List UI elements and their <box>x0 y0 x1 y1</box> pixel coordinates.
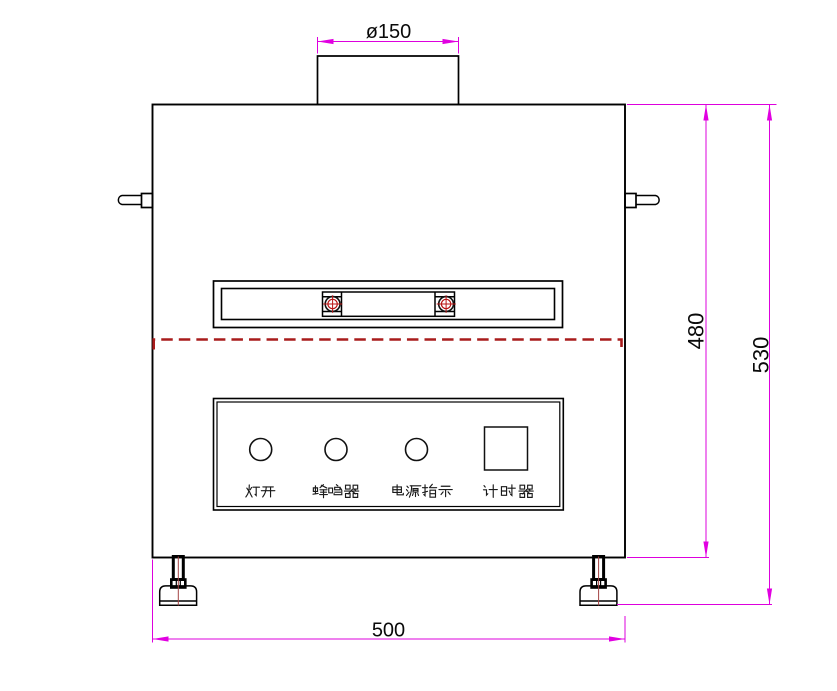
svg-text:480: 480 <box>684 313 709 350</box>
svg-text:ø150: ø150 <box>366 21 412 43</box>
svg-text:530: 530 <box>749 337 774 374</box>
svg-text:500: 500 <box>372 620 405 642</box>
